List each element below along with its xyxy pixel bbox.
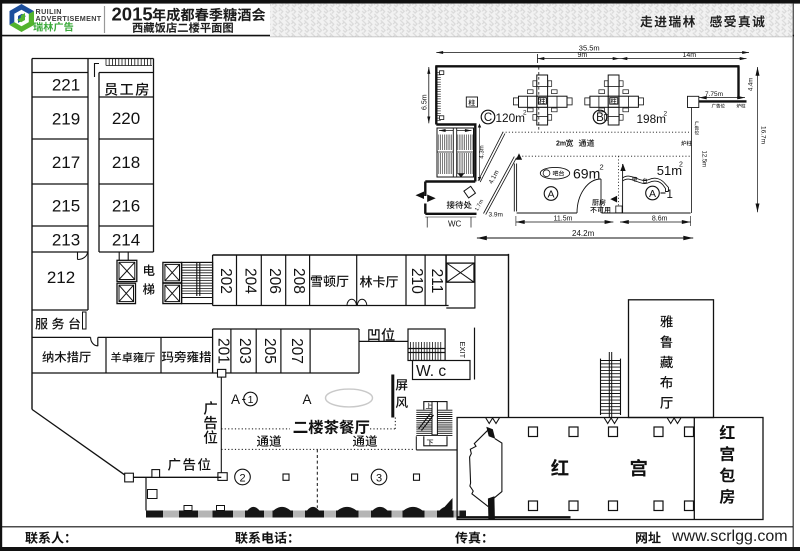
svg-text:4.3m: 4.3m bbox=[480, 145, 486, 158]
svg-text:212: 212 bbox=[47, 268, 75, 287]
svg-text:2m: 2m bbox=[556, 141, 566, 148]
svg-text:221: 221 bbox=[52, 76, 80, 95]
svg-text:217: 217 bbox=[52, 153, 80, 172]
svg-text:120m: 120m bbox=[496, 111, 526, 125]
svg-text:B: B bbox=[596, 112, 604, 124]
svg-text:2: 2 bbox=[600, 163, 604, 172]
svg-text:201: 201 bbox=[214, 338, 231, 364]
svg-text:2: 2 bbox=[679, 162, 683, 169]
svg-text:202: 202 bbox=[217, 268, 234, 294]
svg-text:203: 203 bbox=[236, 338, 253, 364]
svg-text:www.scrlgg.com: www.scrlgg.com bbox=[671, 528, 788, 545]
svg-text:2015: 2015 bbox=[112, 3, 153, 24]
svg-text:213: 213 bbox=[52, 231, 80, 250]
svg-text:3.9m: 3.9m bbox=[489, 212, 503, 219]
svg-text:A: A bbox=[547, 189, 554, 201]
svg-text:205: 205 bbox=[261, 338, 278, 364]
svg-text:A: A bbox=[231, 392, 240, 407]
svg-text:EXIT: EXIT bbox=[458, 342, 467, 359]
svg-text:206: 206 bbox=[266, 268, 283, 294]
svg-text:2: 2 bbox=[523, 110, 527, 117]
svg-text:216: 216 bbox=[112, 197, 140, 216]
svg-text:11.5m: 11.5m bbox=[554, 216, 573, 223]
svg-text:16.7m: 16.7m bbox=[760, 126, 767, 144]
svg-text:219: 219 bbox=[52, 110, 80, 129]
svg-text:2: 2 bbox=[664, 111, 668, 118]
svg-text:ADVERTISEMENT: ADVERTISEMENT bbox=[36, 14, 102, 23]
svg-text:12.5m: 12.5m bbox=[701, 151, 707, 168]
svg-text:215: 215 bbox=[52, 197, 80, 216]
svg-text:3: 3 bbox=[376, 473, 382, 485]
svg-text:W. c: W. c bbox=[416, 363, 446, 380]
svg-text:1: 1 bbox=[667, 189, 673, 201]
svg-text:8.6m: 8.6m bbox=[652, 216, 668, 223]
svg-text:204: 204 bbox=[241, 268, 258, 294]
svg-text:WC: WC bbox=[448, 220, 462, 229]
svg-text:35.5m: 35.5m bbox=[579, 44, 600, 53]
svg-text:208: 208 bbox=[290, 268, 307, 294]
svg-text:220: 220 bbox=[112, 109, 140, 128]
svg-text:198m: 198m bbox=[637, 112, 667, 126]
svg-text:A: A bbox=[302, 392, 311, 407]
svg-text:7.75m: 7.75m bbox=[705, 91, 723, 98]
svg-text:218: 218 bbox=[112, 153, 140, 172]
svg-text:1: 1 bbox=[248, 394, 254, 406]
svg-text:C: C bbox=[484, 112, 492, 124]
svg-text:211: 211 bbox=[428, 269, 445, 294]
svg-text:210: 210 bbox=[408, 268, 425, 294]
svg-text:24.2m: 24.2m bbox=[572, 229, 595, 238]
svg-text:2: 2 bbox=[239, 473, 245, 485]
svg-text:207: 207 bbox=[288, 338, 305, 364]
svg-text:4.4m: 4.4m bbox=[749, 78, 755, 91]
svg-text:9m: 9m bbox=[578, 52, 588, 59]
svg-text:69m: 69m bbox=[573, 165, 600, 181]
svg-text:214: 214 bbox=[112, 231, 140, 250]
svg-text:14m: 14m bbox=[683, 52, 697, 59]
svg-text:A: A bbox=[649, 188, 656, 200]
svg-text:6.5m: 6.5m bbox=[422, 94, 429, 110]
